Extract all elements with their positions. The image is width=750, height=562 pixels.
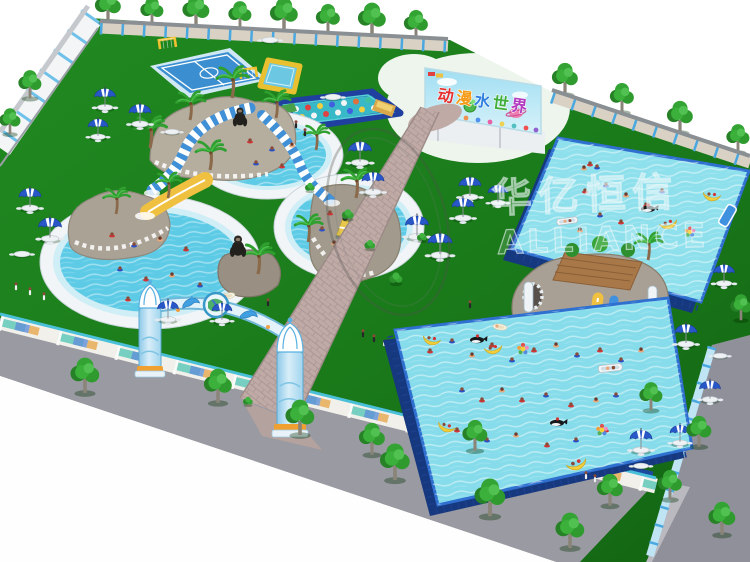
pedestrian bbox=[594, 474, 597, 482]
pedestrian bbox=[29, 287, 32, 295]
water-park-render: 动漫水世界 bbox=[0, 0, 750, 562]
yellow-frame-pool bbox=[260, 60, 300, 92]
scene-canvas: 动漫水世界 bbox=[0, 0, 750, 562]
watermark-text-en: ALLIANCE bbox=[497, 216, 710, 262]
pedestrian bbox=[373, 334, 376, 342]
pedestrian bbox=[362, 329, 365, 337]
pedestrian bbox=[295, 120, 298, 128]
pedestrian bbox=[585, 471, 588, 479]
pedestrian bbox=[304, 128, 307, 136]
pedestrian bbox=[15, 282, 18, 290]
watermark-text-cn: 华亿恒信 bbox=[491, 169, 680, 222]
pedestrian bbox=[43, 292, 46, 300]
pedestrian bbox=[267, 298, 270, 306]
pedestrian bbox=[469, 300, 472, 308]
